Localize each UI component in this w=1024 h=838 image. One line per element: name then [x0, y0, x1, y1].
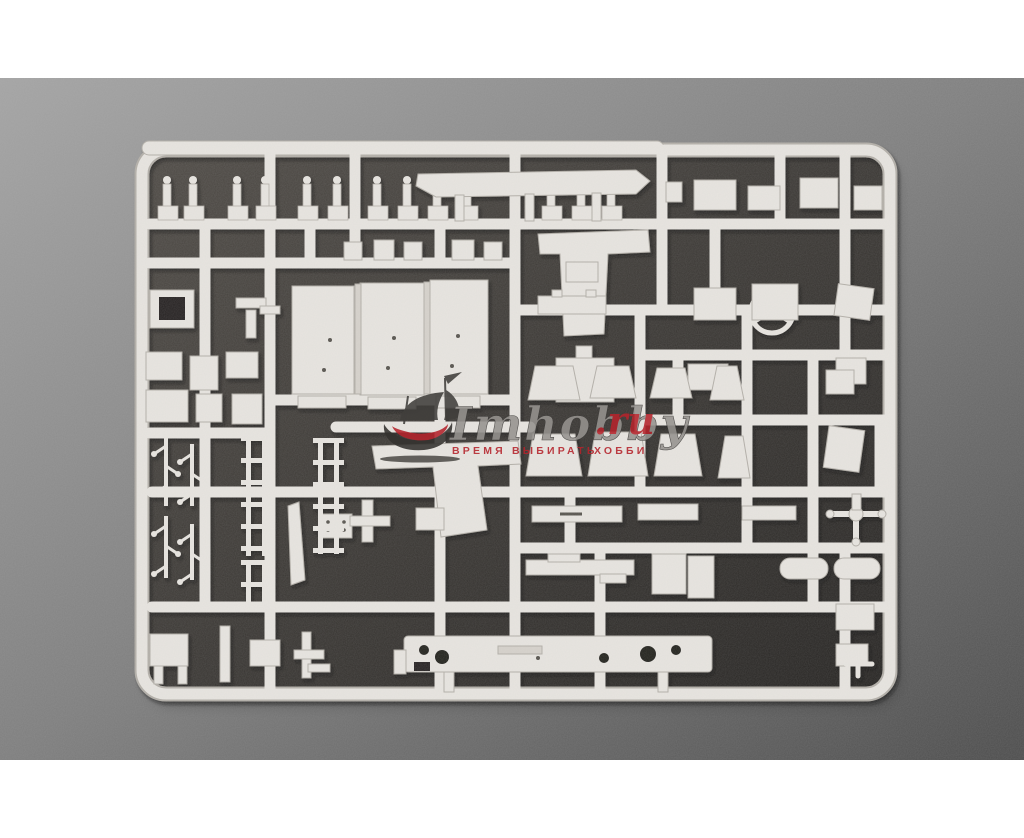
watermark-slogan-left: ВРЕМЯ ВЫБИРАТЬ [452, 445, 598, 457]
product-photo-page: Imhobby.ruВРЕМЯ ВЫБИРАТЬХОББИ [0, 0, 1024, 838]
watermark-slogan-right: ХОББИ [594, 445, 648, 457]
photo-area: Imhobby.ruВРЕМЯ ВЫБИРАТЬХОББИ [0, 78, 1024, 760]
watermark-tld: .ru [594, 398, 655, 443]
sprue-photo: Imhobby.ruВРЕМЯ ВЫБИРАТЬХОББИ [0, 78, 1024, 760]
